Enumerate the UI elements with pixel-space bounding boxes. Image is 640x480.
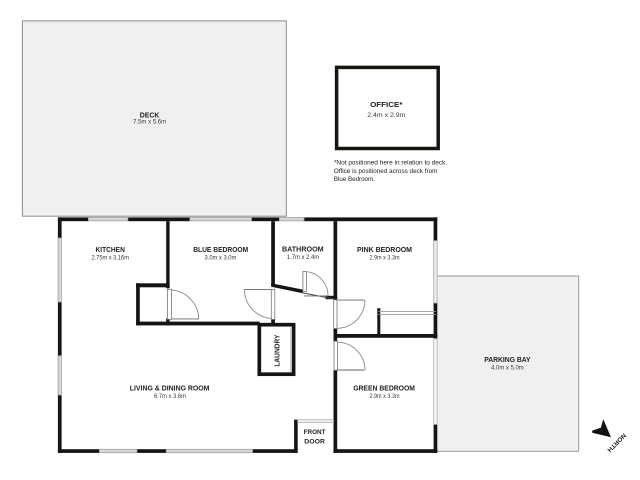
svg-text:2.9m x 3.3m: 2.9m x 3.3m: [369, 255, 399, 262]
svg-text:OFFICE*: OFFICE*: [370, 100, 403, 109]
svg-text:*Not positioned here in relati: *Not positioned here in relation to deck…: [334, 160, 447, 167]
svg-text:4.0m x 5.0m: 4.0m x 5.0m: [491, 365, 524, 372]
svg-text:BLUE BEDROOM: BLUE BEDROOM: [193, 245, 248, 254]
svg-text:2.4m x 2.9m: 2.4m x 2.9m: [367, 112, 405, 119]
svg-text:BATHROOM: BATHROOM: [282, 245, 324, 254]
svg-text:FRONT: FRONT: [304, 429, 326, 436]
svg-text:2.9m x 3.3m: 2.9m x 3.3m: [369, 393, 399, 400]
svg-text:LIVING & DINING ROOM: LIVING & DINING ROOM: [130, 384, 210, 393]
svg-text:7.5m x 5.6m: 7.5m x 5.6m: [133, 119, 166, 126]
svg-text:LAUNDRY: LAUNDRY: [273, 335, 282, 367]
svg-text:1.7m x 2.4m: 1.7m x 2.4m: [287, 254, 319, 261]
svg-text:GREEN BEDROOM: GREEN BEDROOM: [353, 384, 415, 393]
svg-text:3.0m x 3.0m: 3.0m x 3.0m: [205, 255, 237, 262]
svg-text:PARKING BAY: PARKING BAY: [484, 355, 530, 364]
svg-text:2.75m x 3.16m: 2.75m x 3.16m: [91, 255, 129, 262]
svg-text:6.7m x 3.6m: 6.7m x 3.6m: [154, 393, 186, 400]
svg-text:PINK BEDROOM: PINK BEDROOM: [357, 245, 412, 254]
svg-text:KITCHEN: KITCHEN: [96, 245, 125, 254]
svg-text:Office is positioned across de: Office is positioned across deck from: [334, 168, 438, 175]
svg-text:DOOR: DOOR: [304, 439, 325, 446]
svg-text:Blue Bedroom.: Blue Bedroom.: [334, 176, 375, 183]
